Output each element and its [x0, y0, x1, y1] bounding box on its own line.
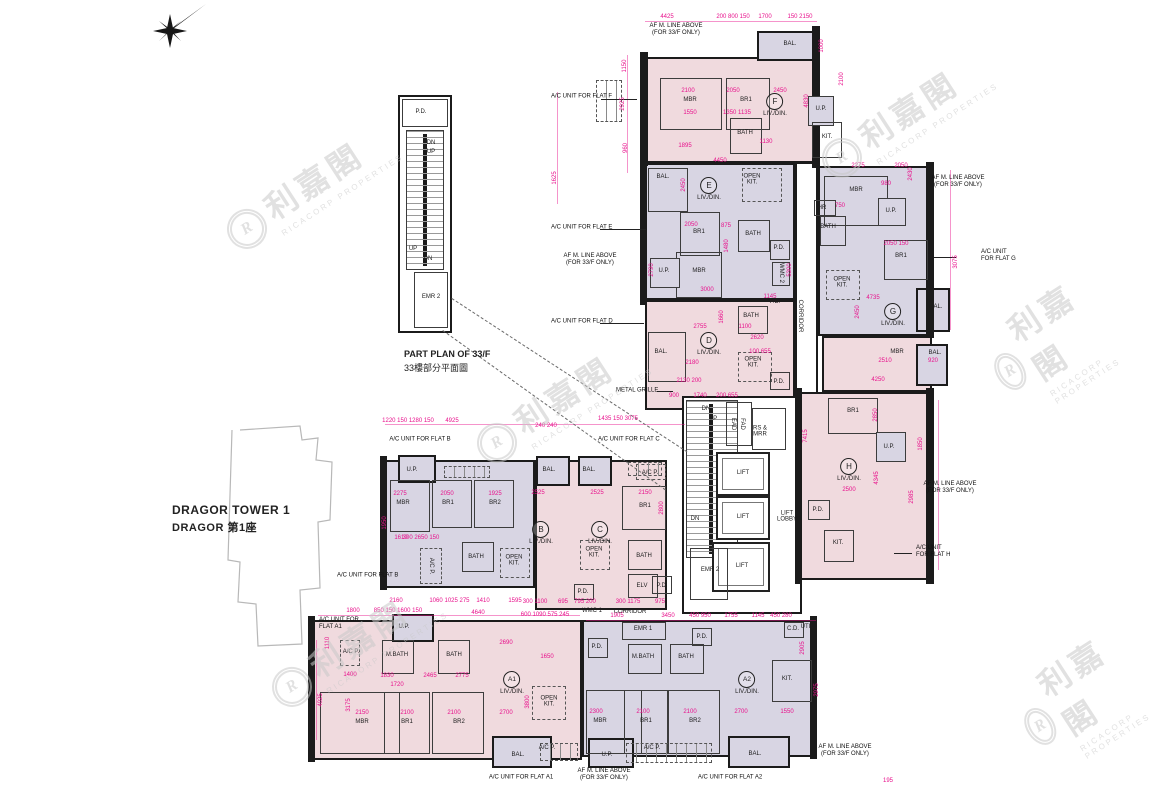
room-label: UP	[427, 149, 435, 155]
annotation-label: A/C UNIT FOR FLAT F	[551, 94, 612, 101]
room-label: FAD	[739, 418, 745, 430]
dimension-label: 2850	[873, 408, 879, 421]
dimension-label: 2100	[683, 709, 696, 715]
room-label: M.BATH	[386, 652, 408, 658]
part-plan-caption-zh: 33樓部分平面圖	[404, 361, 490, 374]
annotation-label: A/C UNIT FOR FLAT A1	[319, 617, 359, 631]
dimension-label: 2160	[389, 598, 402, 604]
room-label: BAL.	[928, 350, 941, 356]
dimension-label: 2800	[659, 501, 665, 514]
dimension-label: 2130 200	[676, 378, 701, 384]
annotation-label: A/C UNIT FOR FLAT A1	[489, 775, 553, 782]
floor-plan-page: DRAGOR TOWER 1 DRAGOR 第1座 PART PLAN OF 3…	[0, 0, 1170, 785]
annotation-label: AF M. LINE ABOVE (FOR 33/F ONLY)	[923, 481, 976, 495]
dimension-label: 900	[669, 393, 679, 399]
dimension-label: 2775	[455, 673, 468, 679]
wall-segment	[640, 52, 648, 166]
dimension-label: 1550	[683, 110, 696, 116]
room-label: MBR	[683, 97, 696, 103]
watermark: R利嘉閣RICACORP PROPERTIES	[998, 620, 1162, 780]
dimension-label: 1100	[739, 324, 752, 330]
room-label: BR1	[847, 408, 859, 414]
dimension-label: 2975	[814, 683, 820, 696]
watermark-zh: 利嘉閣	[1028, 620, 1152, 745]
dimension-label: 4425	[660, 14, 673, 20]
annotation-label: A/C UNIT FOR FLAT C	[598, 437, 660, 444]
dimension-label: 240 240	[535, 423, 557, 429]
watermark-logo-icon: R	[219, 201, 274, 256]
dimension-label: 1595	[508, 598, 521, 604]
annotation-label: A/C UNIT FOR FLAT B	[389, 437, 450, 444]
room-label: U.P.	[399, 624, 410, 630]
flat-livdin-label: LIV./DIN.	[837, 476, 861, 482]
room-label: BR1	[640, 718, 652, 724]
room-label: OPEN KIT.	[505, 555, 522, 568]
room-label: MBR	[890, 349, 903, 355]
dimension-label: 4025	[318, 693, 324, 706]
room-label: BAL.	[582, 467, 595, 473]
dimension-label: 960	[623, 143, 629, 153]
dimension-label: 2700	[499, 710, 512, 716]
dimension-label: 2050	[684, 222, 697, 228]
tower-title-zh: DRAGOR 第1座	[172, 519, 290, 535]
room-label: EMR 2	[701, 567, 719, 573]
dimension-label: 1830	[380, 673, 393, 679]
watermark-logo-icon: R	[1017, 701, 1063, 750]
dimension-label: 850 150 1600 150	[374, 608, 422, 614]
watermark-en: RICACORP PROPERTIES	[875, 81, 1000, 167]
room-label: U.P.	[816, 106, 827, 112]
dimension-line	[557, 92, 558, 204]
room-label: WMC 2	[778, 263, 784, 283]
dimension-label: 2700	[734, 709, 747, 715]
dimension-label: 980	[881, 181, 891, 187]
wall-segment	[795, 388, 802, 584]
dimension-label: 450 950	[689, 613, 711, 619]
room-label: P.D.	[416, 109, 427, 115]
watermark-text: 利嘉閣RICACORP PROPERTIES	[254, 113, 405, 238]
dimension-label: 200 655	[716, 393, 738, 399]
room-label: P.D.	[657, 583, 668, 589]
room-label: A/C P.	[539, 745, 556, 751]
room-label: MBR	[355, 719, 368, 725]
room-label: MBR	[593, 718, 606, 724]
room-label: BATH	[737, 130, 753, 136]
flat-livdin-label: LIV./DIN.	[500, 689, 524, 695]
room-label: BATH	[743, 313, 759, 319]
watermark-text: 利嘉閣RICACORP PROPERTIES	[849, 42, 1000, 167]
dimension-label: 150 2150	[787, 14, 812, 20]
room-label: BR2	[453, 719, 465, 725]
flat-letter-circle: F	[766, 93, 783, 110]
dimension-label: 875	[721, 223, 731, 229]
room-label: M.BATH	[632, 654, 654, 660]
room-label: BAL.	[542, 467, 555, 473]
room-label: DN	[427, 140, 436, 146]
dimension-label: 2755	[693, 324, 706, 330]
room-label: P.D.	[697, 634, 708, 640]
room-label: BATH	[820, 224, 836, 230]
room-label: U.P.	[407, 467, 418, 473]
watermark-text: 利嘉閣RICACORP PROPERTIES	[998, 265, 1132, 406]
room	[676, 252, 722, 298]
room-label: KIT.	[782, 676, 792, 682]
dimension-label: 300 2650 150	[403, 535, 440, 541]
dimension-label: 1905	[610, 613, 623, 619]
room	[648, 332, 686, 382]
annotation-label: A/C UNIT FOR FLAT B	[337, 573, 398, 580]
dimension-label: 920	[928, 358, 938, 364]
room-label: UTIL.	[801, 624, 816, 630]
room-label: BAL.	[654, 349, 667, 355]
room-label: BAL.	[511, 752, 524, 758]
dimension-label: 2100	[400, 710, 413, 716]
room-label: LIFT	[737, 470, 749, 476]
watermark: R利嘉閣RICACORP PROPERTIES	[215, 113, 405, 264]
room-label: P.D.	[578, 589, 589, 595]
room-label: OPEN KIT.	[585, 547, 602, 560]
dimension-label: 195	[883, 778, 893, 784]
dimension-label: 5300	[787, 263, 793, 276]
room-label: OPEN KIT.	[833, 277, 850, 290]
wall-segment	[640, 160, 646, 305]
dimension-label: 2275	[393, 491, 406, 497]
dimension-line	[627, 55, 628, 173]
dimension-label: 1650	[540, 654, 553, 660]
watermark-en: RICACORP PROPERTIES	[1078, 698, 1162, 761]
dimension-label: 795 200	[574, 599, 596, 605]
flat-marker-c: CLIV./DIN.	[588, 521, 612, 545]
dimension-label: 2050	[726, 88, 739, 94]
annotation-leader-line	[894, 553, 912, 554]
room-label: EAD	[730, 418, 736, 430]
annotation-label: AF M. LINE ABOVE (FOR 33/F ONLY)	[818, 744, 871, 758]
dimension-label: 1410	[476, 598, 489, 604]
room-label: P.D.	[592, 644, 603, 650]
room-label: LIFT LOBBY	[777, 511, 797, 524]
dimension-label: 1720	[390, 682, 403, 688]
dimension-label: 7415	[803, 429, 809, 442]
dimension-label: 2525	[531, 490, 544, 496]
room	[690, 548, 728, 600]
flat-marker-g: GLIV./DIN.	[881, 303, 905, 327]
dimension-label: 2450	[855, 305, 861, 318]
dimension-label: 2050	[894, 163, 907, 169]
room-label: BAL.	[656, 174, 669, 180]
dimension-label: 2450	[773, 88, 786, 94]
dimension-label: 4250	[871, 377, 884, 383]
room-label: MBR	[849, 187, 862, 193]
flat-livdin-label: LIV./DIN.	[697, 195, 721, 201]
flat-marker-b: BLIV./DIN.	[529, 521, 553, 545]
flat-livdin-label: LIV./DIN.	[763, 111, 787, 117]
annotation-label: METAL GRILLE	[616, 388, 658, 395]
dimension-label: 1950	[382, 516, 388, 529]
dimension-label: 2300	[589, 709, 602, 715]
flat-letter-circle: A1	[503, 671, 520, 688]
dimension-label: 4925	[445, 418, 458, 424]
annotation-label: A/C UNIT FOR FLAT D	[551, 319, 613, 326]
part-plan-caption: PART PLAN OF 33/F 33樓部分平面圖	[404, 349, 490, 374]
dimension-label: 3800	[525, 695, 531, 708]
room-label: BATH	[745, 231, 761, 237]
watermark-zh: 利嘉閣	[254, 113, 399, 230]
dimension-label: 2510	[878, 358, 891, 364]
flat-livdin-label: LIV./DIN.	[735, 689, 759, 695]
room-label: MBR	[396, 500, 409, 506]
room-label: BATH	[446, 652, 462, 658]
room-label: P.D.	[774, 245, 785, 251]
annotation-label: AF M. LINE ABOVE (FOR 33/F ONLY)	[563, 253, 616, 267]
dimension-label: 1700	[758, 14, 771, 20]
flat-letter-circle: C	[591, 521, 608, 538]
dimension-label: 2050 150	[883, 241, 908, 247]
flat-livdin-label: LIV./DIN.	[529, 539, 553, 545]
room-label: CORRIDOR	[797, 300, 803, 333]
dimension-label: 1550	[780, 709, 793, 715]
room-label: A/C P.	[642, 470, 659, 476]
dimension-label: 1625	[552, 171, 558, 184]
room-label: U.P.	[602, 752, 613, 758]
dimension-label: 695	[558, 599, 568, 605]
annotation-label: A/C UNIT FOR FLAT H	[916, 545, 950, 559]
dimension-label: 1435 150 3075	[598, 416, 638, 422]
annotation-label: A/C UNIT FOR FLAT A2	[698, 775, 762, 782]
dimension-label: 1480	[724, 239, 730, 252]
flat-marker-e: ELIV./DIN.	[697, 177, 721, 201]
flat-marker-h: HLIV./DIN.	[837, 458, 861, 482]
flat-marker-a2: A2LIV./DIN.	[735, 671, 759, 695]
dimension-label: 1145	[752, 613, 765, 619]
room-label: BR1	[693, 229, 705, 235]
tower-title: DRAGOR TOWER 1 DRAGOR 第1座	[172, 503, 290, 535]
dimension-label: 2465	[423, 673, 436, 679]
room-label: A/C P.	[343, 649, 360, 655]
dimension-label: 2050	[440, 491, 453, 497]
dimension-label: 1145	[764, 294, 777, 300]
flat-livdin-label: LIV./DIN.	[881, 321, 905, 327]
dimension-label: 3000	[700, 287, 713, 293]
room-label: BR2	[689, 718, 701, 724]
dimension-label: 2985	[909, 490, 915, 503]
dimension-label: 2100	[681, 88, 694, 94]
room-label: P.D.	[813, 507, 824, 513]
room-label: U.P.	[884, 444, 895, 450]
dimension-label: 2925	[620, 97, 626, 110]
room-label: C.D.	[787, 626, 799, 632]
dimension-line	[316, 640, 317, 740]
room-label: EMR 1	[634, 626, 652, 632]
watermark-zh: 利嘉閣	[998, 265, 1122, 390]
dimension-line	[645, 21, 817, 22]
room	[660, 78, 722, 130]
flat-letter-circle: G	[884, 303, 901, 320]
dimension-label: 2275	[851, 163, 864, 169]
room-label: BR2	[489, 500, 501, 506]
dimension-label: 1800	[346, 608, 359, 614]
dimension-label: 1060	[429, 598, 442, 604]
dimension-label: 3175	[346, 698, 352, 711]
room-label: ELV	[637, 583, 648, 589]
room	[820, 216, 846, 246]
flat-letter-circle: A2	[738, 671, 755, 688]
flat-letter-circle: D	[700, 332, 717, 349]
dimension-label: 4450	[713, 158, 726, 164]
dimension-label: 2905	[800, 641, 806, 654]
room-label: BAL.	[783, 41, 796, 47]
dimension-label: 2790	[649, 263, 655, 276]
dimension-label: 1025 275	[444, 598, 469, 604]
north-compass-icon	[148, 2, 210, 54]
room	[828, 398, 878, 434]
watermark-en: RICACORP PROPERTIES	[1048, 343, 1132, 406]
flat-letter-circle: H	[840, 458, 857, 475]
room-label: KIT.	[833, 540, 843, 546]
dimension-label: 2690	[499, 640, 512, 646]
room-label: LIFT	[737, 514, 749, 520]
dimension-label: 3075	[953, 255, 959, 268]
watermark-zh: 利嘉閣	[849, 42, 994, 159]
dimension-label: 100 655	[749, 349, 771, 355]
dimension-label: 200 800 150	[716, 14, 749, 20]
room-label: OPEN KIT.	[744, 357, 761, 370]
tower-title-en: DRAGOR TOWER 1	[172, 503, 290, 517]
room-label: BR1	[401, 719, 413, 725]
room-label: BR1	[639, 503, 651, 509]
watermark: R利嘉閣RICACORP PROPERTIES	[465, 327, 655, 478]
room-label: RS & MRR	[753, 426, 767, 439]
room-label: P.D.	[774, 379, 785, 385]
dimension-label: 1130	[760, 139, 773, 145]
room-label: DN	[691, 516, 700, 522]
dimension-label: 4345	[874, 471, 880, 484]
flat-livdin-label: LIV./DIN.	[697, 350, 721, 356]
ac-platform-louvres	[626, 743, 712, 763]
dimension-label: 1400	[343, 672, 356, 678]
dimension-label: 975	[655, 599, 665, 605]
room-label: BAL.	[929, 304, 942, 310]
room-label: BR1	[895, 253, 907, 259]
dimension-label: 600 1090 575 245	[521, 612, 569, 618]
dimension-label: 1850	[918, 437, 924, 450]
room-label: UP	[409, 246, 417, 252]
dimension-label: 2430	[908, 167, 914, 180]
watermark: R利嘉閣RICACORP PROPERTIES	[968, 265, 1132, 425]
dimension-label: 4735	[866, 295, 879, 301]
room-label: OPEN KIT.	[540, 696, 557, 709]
watermark-en: RICACORP PROPERTIES	[280, 152, 405, 238]
dimension-label: 1895	[678, 143, 691, 149]
room-label: MBR	[692, 268, 705, 274]
room-label: KIT.	[822, 134, 832, 140]
part-plan-caption-en: PART PLAN OF 33/F	[404, 349, 490, 359]
room-label: DN	[424, 256, 433, 262]
annotation-label: AF M. LINE ABOVE (FOR 33/F ONLY)	[649, 23, 702, 37]
annotation-label: A/C UNIT FOR FLAT G	[981, 249, 1016, 263]
ac-platform-louvres	[596, 80, 622, 122]
dimension-label: 300 1175	[616, 599, 641, 605]
dimension-label: 4640	[471, 610, 484, 616]
room-label: UP	[709, 416, 717, 422]
dimension-label: 1110	[325, 637, 331, 649]
room-label: EMR 2	[422, 294, 440, 300]
watermark-text: 利嘉閣RICACORP PROPERTIES	[1028, 620, 1162, 761]
dimension-label: 3450	[661, 613, 674, 619]
dimension-label: 750	[835, 203, 845, 209]
room-label: A/C P.	[428, 558, 434, 575]
flat-letter-circle: B	[532, 521, 549, 538]
dimension-line	[586, 620, 816, 621]
dimension-label: 2450	[681, 178, 687, 191]
dimension-label: 2150	[355, 710, 368, 716]
room-label: DN	[702, 406, 711, 412]
dimension-label: 2500	[842, 487, 855, 493]
room-label: A/C P.	[644, 745, 661, 751]
dimension-label: 2180	[685, 360, 698, 366]
watermark-logo-icon: R	[987, 346, 1033, 395]
dimension-label: 2100	[636, 709, 649, 715]
room-label: BR1	[740, 97, 752, 103]
dimension-label: 2525	[590, 490, 603, 496]
dimension-label: 300 1100	[523, 599, 548, 605]
room-label: BATH	[678, 654, 694, 660]
room-label: LIFT	[736, 563, 748, 569]
annotation-label: AF M. LINE ABOVE (FOR 33/F ONLY)	[931, 175, 984, 189]
flat-marker-d: DLIV./DIN.	[697, 332, 721, 356]
dimension-label: 1740	[693, 393, 706, 399]
dimension-label: 1000	[819, 39, 825, 52]
dimension-label: 2150	[638, 490, 651, 496]
room-label: U.P.	[659, 268, 670, 274]
room-label: BATH	[468, 554, 484, 560]
room-label: U.P.	[886, 208, 897, 214]
flat-livdin-label: LIV./DIN.	[588, 539, 612, 545]
room-label: OPEN KIT.	[743, 174, 760, 187]
annotation-leader-line	[657, 391, 673, 392]
dimension-label: 2100	[839, 72, 845, 85]
dimension-label: 1925	[488, 491, 501, 497]
room-label: HR	[818, 205, 827, 211]
dimension-label: 1220 150 1280 150	[382, 418, 434, 424]
annotation-label: A/C UNIT FOR FLAT E	[551, 225, 612, 232]
dimension-line	[950, 170, 951, 330]
dimension-label: 450 280	[770, 613, 792, 619]
flat-marker-a1: A1LIV./DIN.	[500, 671, 524, 695]
dimension-label: 2100	[447, 710, 460, 716]
room-label: BAL.	[748, 751, 761, 757]
dimension-label: 4830	[804, 94, 810, 107]
room-label: BATH	[636, 553, 652, 559]
flat-marker-f: FLIV./DIN.	[763, 93, 787, 117]
dimension-label: 2620	[750, 335, 763, 341]
flat-letter-circle: E	[700, 177, 717, 194]
dimension-label: 1150	[622, 60, 628, 73]
ac-platform-louvres	[444, 466, 490, 478]
dimension-label: 1350 1135	[723, 110, 751, 116]
dimension-label: 1660	[719, 310, 725, 323]
room-label: BR1	[442, 500, 454, 506]
annotation-label: AF M. LINE ABOVE (FOR 33/F ONLY)	[577, 768, 630, 782]
dimension-label: 1755	[724, 613, 737, 619]
room-label: WMC 1	[582, 608, 602, 614]
